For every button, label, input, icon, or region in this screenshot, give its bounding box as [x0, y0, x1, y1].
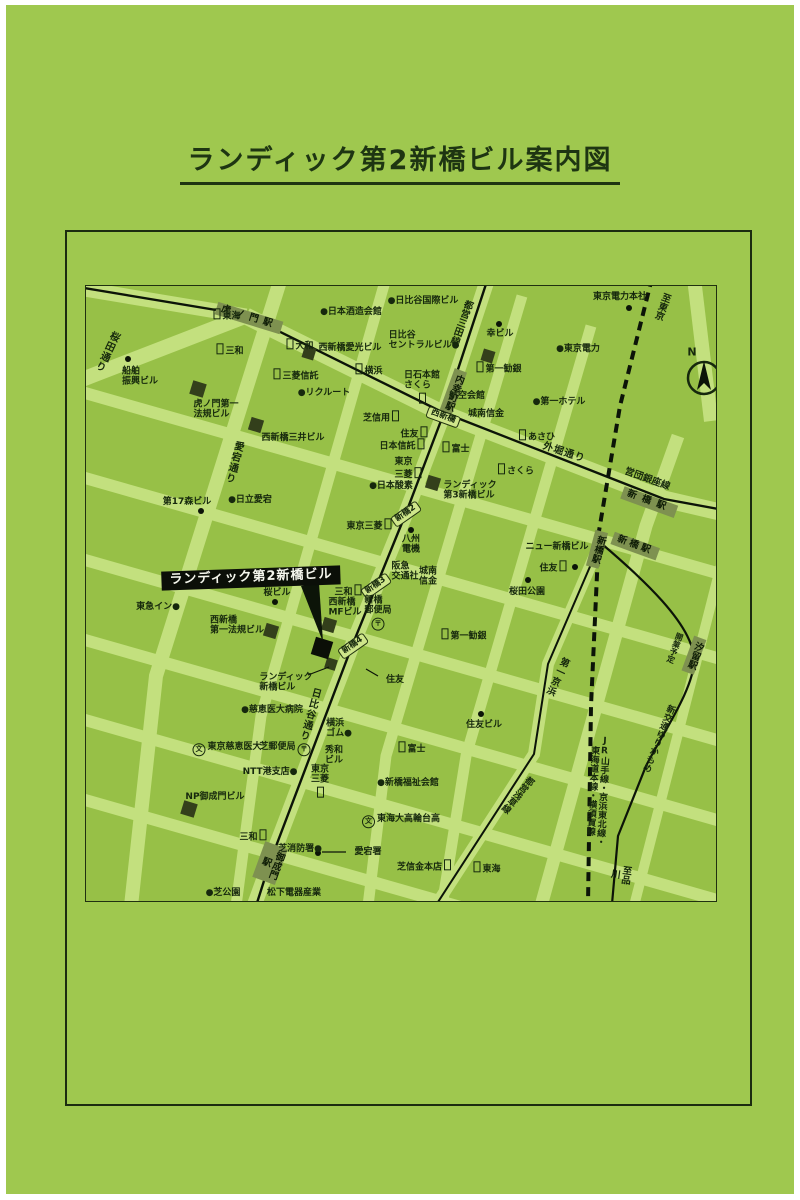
map-label: 富士 — [440, 441, 469, 454]
map-label-text: 外堀通り — [541, 441, 586, 465]
map-label-text: ●リクルート — [298, 388, 351, 398]
map-label: 住友 — [386, 675, 404, 685]
map-label: ランディック 第3新橋ビル — [443, 481, 496, 502]
rail-yurikamome: 新交通ゆりかもめ — [640, 703, 677, 774]
map-label-text: 船舶 振興ビル — [122, 367, 158, 387]
map-label: 西新橋 第一法規ビル — [210, 616, 264, 637]
map-labels-layer: 虎ノ門駅桜田通り東海●日本酒造会館●日比谷国際ビル三和大和西新橋愛光ビル日比谷 … — [86, 286, 716, 901]
map-label: 西新橋愛光ビル — [318, 343, 381, 353]
map-label-text: 住友ビル — [466, 720, 502, 730]
map-label-text: JR山手線・京浜東北線・東海道本線・横須賀線 — [585, 736, 611, 846]
bank-icon — [316, 786, 323, 797]
map-label: 住友 — [539, 560, 568, 573]
map-label: ●芝公園 — [206, 888, 241, 898]
station-shiodome: 汐留駅 — [682, 636, 707, 675]
map-label: 住友ビル — [466, 720, 502, 730]
map-label-text: 新橋 郵便局 — [364, 596, 391, 616]
map-label: 桜ビル — [263, 588, 290, 598]
map-label-text: 第一京浜 — [543, 655, 571, 698]
map-label: 日石本館 さくら — [404, 371, 440, 404]
map-label-text: 東京電力本社 — [593, 292, 647, 302]
map-label-text: 住友 — [539, 563, 557, 573]
map-label-text: 西新橋 MFビル — [328, 598, 361, 618]
map-label-text: 城南信金 — [468, 409, 504, 419]
map-label-text: 日石本館 さくら — [404, 371, 440, 391]
sakurada-park: 桜田公園 — [509, 587, 545, 597]
street-daiichi-keihin: 第一京浜 — [542, 655, 570, 698]
map-label: 三和 — [334, 584, 363, 597]
map-label-text: 愛宕通り — [222, 439, 244, 484]
map-label-text: ●慈恵医大病院 — [241, 705, 303, 715]
map-label-text: ランディック第2新橋ビル — [169, 567, 333, 588]
map-label-text: ランディック 第3新橋ビル — [443, 481, 496, 501]
map-label-text: 富士 — [451, 444, 469, 454]
map-label: 第一勧銀 — [474, 361, 521, 374]
map-label: 船舶 振興ビル — [122, 367, 158, 388]
page-title-text: ランディック第2新橋ビル案内図 — [180, 138, 621, 185]
map-label: 阪急 交通社 — [391, 562, 418, 583]
map-label-text: 西新橋三井ビル — [261, 433, 324, 443]
map-label-text: 東京三菱 — [346, 521, 382, 531]
map-label-text: 横浜 — [364, 366, 382, 376]
map-label-text: 新交通ゆりかもめ — [640, 703, 676, 774]
map-label: 文東京慈恵医大 — [190, 742, 261, 756]
intersection-shimbashi-4: 新橋4 — [337, 632, 369, 659]
map-label-text: 御成門駅 — [259, 850, 286, 881]
map-label-text: ●東京電力 — [556, 344, 600, 354]
map-label: あさひ — [517, 429, 555, 442]
bank-icon — [216, 343, 223, 354]
map-label: 芝消防署● — [278, 844, 322, 854]
shiba-post-office: 芝郵便局〒 — [259, 742, 312, 756]
station-shimbashi-ginza: 新橋駅 — [620, 486, 678, 517]
map-label-text: 東京慈恵医大 — [207, 742, 261, 752]
map-label-text: ●新橋福祉会館 — [377, 778, 439, 788]
bank-icon — [421, 426, 428, 437]
map-label-text: 東海大高輪台高 — [377, 814, 440, 824]
map-label-text: ●芝公園 — [206, 888, 241, 898]
map-label: 富士 — [396, 741, 425, 754]
map-label: ●慈恵医大病院 — [241, 705, 303, 715]
intersection-shimbashi-2: 新橋2 — [390, 500, 422, 527]
map-label-text: 桜田公園 — [509, 587, 545, 597]
map-label: 東海 — [471, 861, 500, 874]
bank-icon — [415, 468, 422, 479]
map-label: ●東京電力 — [556, 344, 600, 354]
map-label-text: 芝信金本店 — [397, 862, 442, 872]
map-label: 航空会館 — [449, 391, 485, 401]
bank-icon — [444, 859, 451, 870]
map-label: 三和 — [214, 343, 243, 356]
map-label: ●新橋福祉会館 — [377, 778, 439, 788]
bank-icon — [442, 441, 449, 452]
map-label: 八州 電機 — [402, 535, 420, 556]
map-label-text: 日本信託 — [379, 441, 415, 451]
map-label-text: 東海 — [482, 864, 500, 874]
map-label-text: 大和 — [295, 341, 313, 351]
map-label-text: 西新橋 第一法規ビル — [210, 616, 264, 636]
map-label: ●日本酒造会館 — [320, 307, 382, 317]
bank-icon — [385, 518, 392, 529]
map-label: 横浜 — [353, 363, 382, 376]
shimbashi-post-office: 新橋 郵便局〒 — [364, 596, 391, 631]
map-label-text: 虎ノ門第一 法規ビル — [193, 400, 238, 420]
bank-icon — [398, 741, 405, 752]
map-label-text: 第一勧銀 — [450, 631, 486, 641]
map-label: 開業予定 — [665, 631, 685, 664]
rail-toei-asakusa-line: 都営浅草線 — [499, 773, 536, 814]
map-label: 第一勧銀 — [439, 628, 486, 641]
map-label-text: 東海 — [222, 311, 240, 321]
subject-building-banner: ランディック第2新橋ビル — [161, 565, 341, 590]
map-label: NP御成門ビル — [185, 792, 244, 802]
map-label-text: 新橋駅 — [616, 534, 655, 557]
map-label: 西新橋 MFビル — [328, 598, 361, 619]
map-label: 城南信金 — [468, 409, 504, 419]
map-label: ●リクルート — [298, 388, 351, 398]
bank-icon — [441, 628, 448, 639]
station-shimbashi-2: 新橋駅 — [610, 532, 659, 560]
map-label: ●日本酸素 — [369, 481, 413, 491]
map-label-text: 至品川 — [608, 865, 632, 885]
school-icon: 文 — [362, 815, 375, 828]
post-icon: 〒 — [298, 743, 311, 756]
map-label-text: さくら — [507, 466, 534, 476]
bank-icon — [392, 410, 399, 421]
page-title: ランディック第2新橋ビル案内図 — [0, 138, 800, 185]
map-label-text: 秀和 ビル — [325, 746, 343, 766]
map-label-text: 松下電器産業 — [267, 888, 321, 898]
bank-icon — [418, 392, 425, 403]
map-label-text: 汐留駅 — [685, 640, 705, 671]
map-label: 芝信金本店 — [397, 859, 453, 872]
map-panel: 虎ノ門駅桜田通り東海●日本酒造会館●日比谷国際ビル三和大和西新橋愛光ビル日比谷 … — [85, 285, 717, 902]
map-label: 三菱信託 — [271, 368, 318, 381]
bank-icon — [560, 560, 567, 571]
map-label-text: ●日比谷国際ビル — [388, 296, 459, 306]
map-label-text: NP御成門ビル — [185, 792, 244, 802]
bank-icon — [519, 429, 526, 440]
map-label-text: 新橋3 — [363, 575, 388, 596]
map-label-text: あさひ — [528, 432, 555, 442]
map-label-text: 新橋2 — [393, 503, 418, 524]
map-label-text: 住友 — [386, 675, 404, 685]
bank-icon — [476, 361, 483, 372]
map-label: 秀和 ビル — [325, 746, 343, 767]
map-label-text: ●日立愛宕 — [228, 495, 272, 505]
map-label-text: 三和 — [239, 832, 257, 842]
map-label-text: 都営浅草線 — [499, 774, 536, 815]
bank-icon — [355, 363, 362, 374]
station-shimbashi-jr: 新橋駅 — [586, 530, 608, 569]
map-label-text: 桜田通り — [92, 329, 121, 374]
compass-n-label: N — [687, 347, 696, 360]
map-label-text: 幸ビル — [486, 329, 513, 339]
bank-icon — [498, 463, 505, 474]
direction-to-tokyo: 至東京 — [651, 291, 671, 322]
map-label: 日本信託 — [379, 438, 426, 451]
map-label: 東京三菱 — [346, 518, 393, 531]
map-label-text: 城南 信金 — [419, 567, 437, 587]
map-label-text: 開業予定 — [665, 631, 684, 664]
map-label-text: ●第一ホテル — [533, 397, 586, 407]
map-label: ●日立愛宕 — [228, 495, 272, 505]
map-label: 第17森ビル — [163, 497, 212, 507]
map-label-text: 阪急 交通社 — [391, 562, 418, 582]
map-label-text: 桜ビル — [263, 588, 290, 598]
map-label: 文東海大高輪台高 — [360, 814, 440, 828]
map-label: 横浜 ゴム● — [326, 719, 352, 740]
bank-icon — [418, 438, 425, 449]
map-label-text: 芝郵便局 — [259, 742, 295, 752]
school-icon: 文 — [192, 743, 205, 756]
bank-icon — [213, 308, 220, 319]
map-label: さくら — [496, 463, 534, 476]
map-label-text: 愛宕署 — [354, 847, 381, 857]
map-label-text: 東京 三菱 — [311, 765, 329, 785]
map-label-text: 航空会館 — [449, 391, 485, 401]
map-label-text: 西新橋愛光ビル — [318, 343, 381, 353]
map-label-text: 八州 電機 — [402, 535, 420, 555]
map-label-text: ●日本酸素 — [369, 481, 413, 491]
bank-icon — [286, 338, 293, 349]
direction-to-shinagawa: 至品川 — [606, 859, 631, 889]
map-label-text: 芝信用 — [363, 413, 390, 423]
map-label-text: 富士 — [407, 744, 425, 754]
map-label: 東京電力本社 — [593, 292, 647, 302]
map-label-text: 三和 — [334, 587, 352, 597]
map-label: 西新橋三井ビル — [261, 433, 324, 443]
map-label-text: 三菱信託 — [282, 371, 318, 381]
rail-jr-lines: JR山手線・京浜東北線・東海道本線・横須賀線 — [584, 736, 610, 847]
map-label-text: 横浜 ゴム● — [326, 719, 352, 739]
landic-shimbashi-bldg-label: ランディック 新橋ビル — [259, 673, 312, 694]
map-label: 東海 — [211, 308, 240, 321]
map-label-text: NTT港支店● — [243, 767, 298, 777]
map-label: ●日比谷国際ビル — [388, 296, 459, 306]
bank-icon — [273, 368, 280, 379]
map-label: 幸ビル — [486, 329, 513, 339]
map-label: 松下電器産業 — [267, 888, 321, 898]
map-label: 東京 三菱 — [394, 457, 423, 481]
map-label-text: ランディック 新橋ビル — [259, 673, 312, 693]
street-sakurada-dori: 桜田通り — [91, 329, 120, 374]
map-label: NTT港支店● — [243, 767, 298, 777]
map-label-text: 芝消防署● — [278, 844, 322, 854]
map-label-text: 新橋4 — [340, 635, 365, 656]
map-label: 東京 三菱 — [311, 765, 329, 798]
bank-icon — [473, 861, 480, 872]
map-label-text: 新橋駅 — [589, 534, 607, 564]
map-label-text: 東急イン● — [136, 602, 180, 612]
map-label-text: ●日本酒造会館 — [320, 307, 382, 317]
map-label: 虎ノ門第一 法規ビル — [193, 400, 238, 421]
map-label-text: 東京 三菱 — [394, 457, 412, 480]
map-label-text: N — [687, 346, 696, 359]
map-label-text: 至東京 — [652, 291, 672, 322]
map-label-text: 三和 — [225, 346, 243, 356]
street-atago-dori: 愛宕通り — [222, 439, 244, 484]
map-label: 大和 — [284, 338, 313, 351]
map-label: 愛宕署 — [354, 847, 381, 857]
map-label-text: ニュー新橋ビル — [525, 542, 588, 552]
map-label-text: 第一勧銀 — [485, 364, 521, 374]
post-icon: 〒 — [371, 617, 384, 630]
map-label: 城南 信金 — [419, 567, 437, 588]
map-label-text: 第17森ビル — [163, 497, 212, 507]
map-label: 芝信用 — [363, 410, 401, 423]
street-sotobori-dori: 外堀通り — [541, 441, 586, 466]
map-label: ●第一ホテル — [533, 397, 586, 407]
bank-icon — [260, 829, 267, 840]
map-label: 東急イン● — [136, 602, 180, 612]
map-label: ニュー新橋ビル — [525, 542, 588, 552]
